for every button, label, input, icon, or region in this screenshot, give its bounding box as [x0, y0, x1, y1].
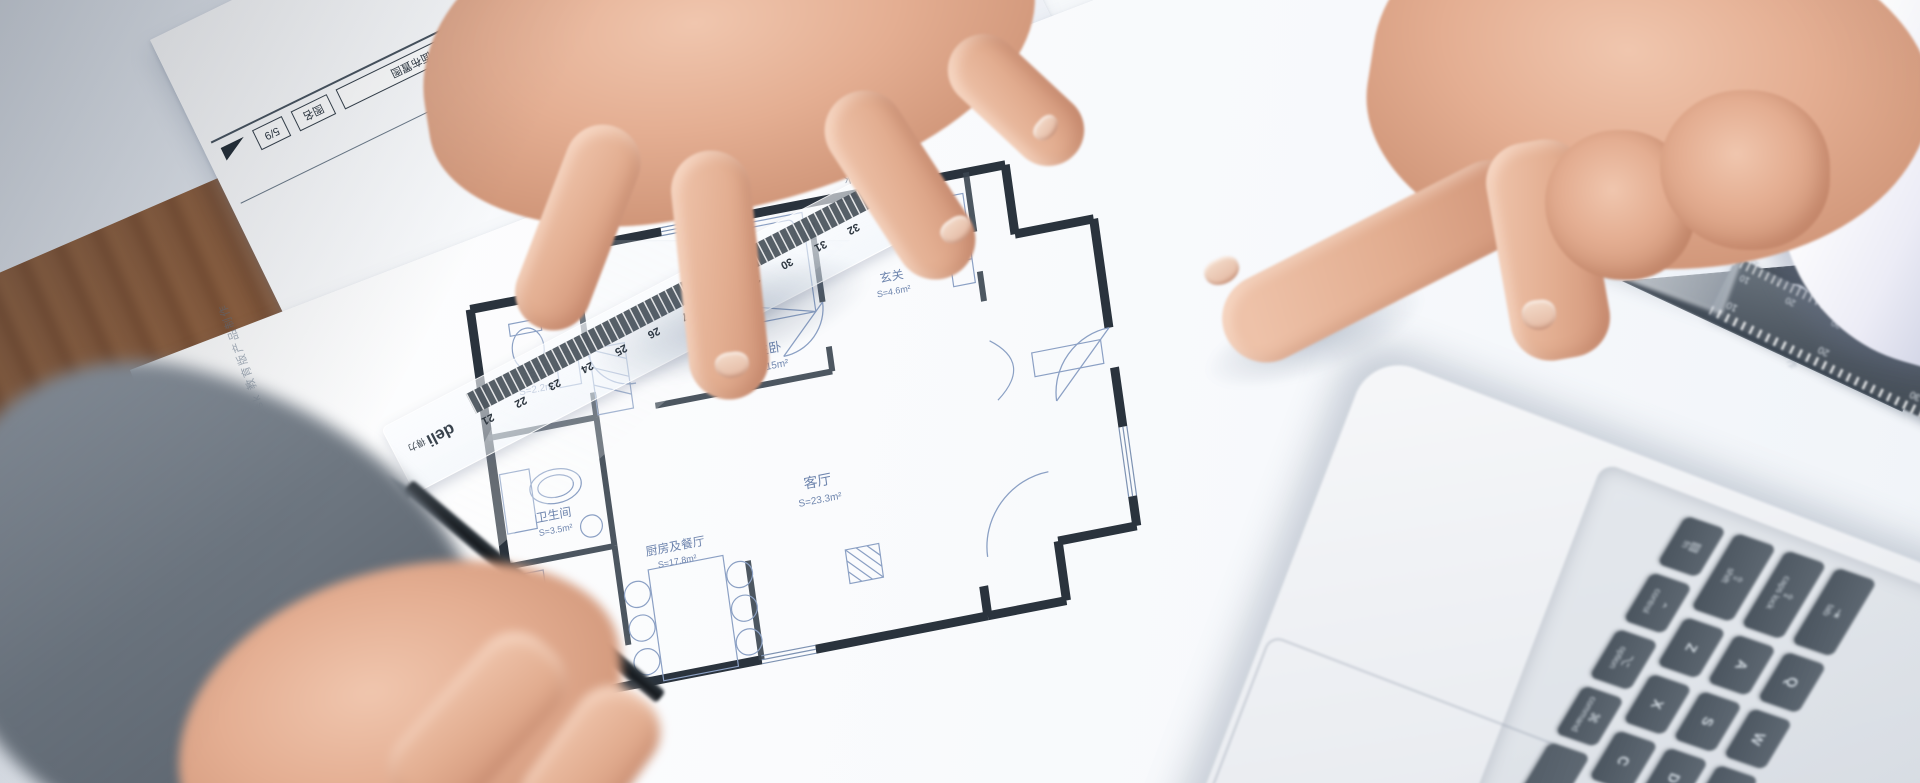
photo-scene: 5/9 图名 平面布置图 © Autodesk Autodesk 教育版产品制作…	[0, 0, 1920, 783]
title-block-page: 5/9	[252, 116, 292, 150]
svg-text:厨房及餐厅: 厨房及餐厅	[645, 533, 706, 559]
svg-text:客厅: 客厅	[803, 470, 833, 491]
svg-text:S=23.3m²: S=23.3m²	[798, 491, 843, 510]
sheet-corner-mark	[220, 137, 250, 161]
ruler-logo: deli 得力	[405, 419, 458, 460]
